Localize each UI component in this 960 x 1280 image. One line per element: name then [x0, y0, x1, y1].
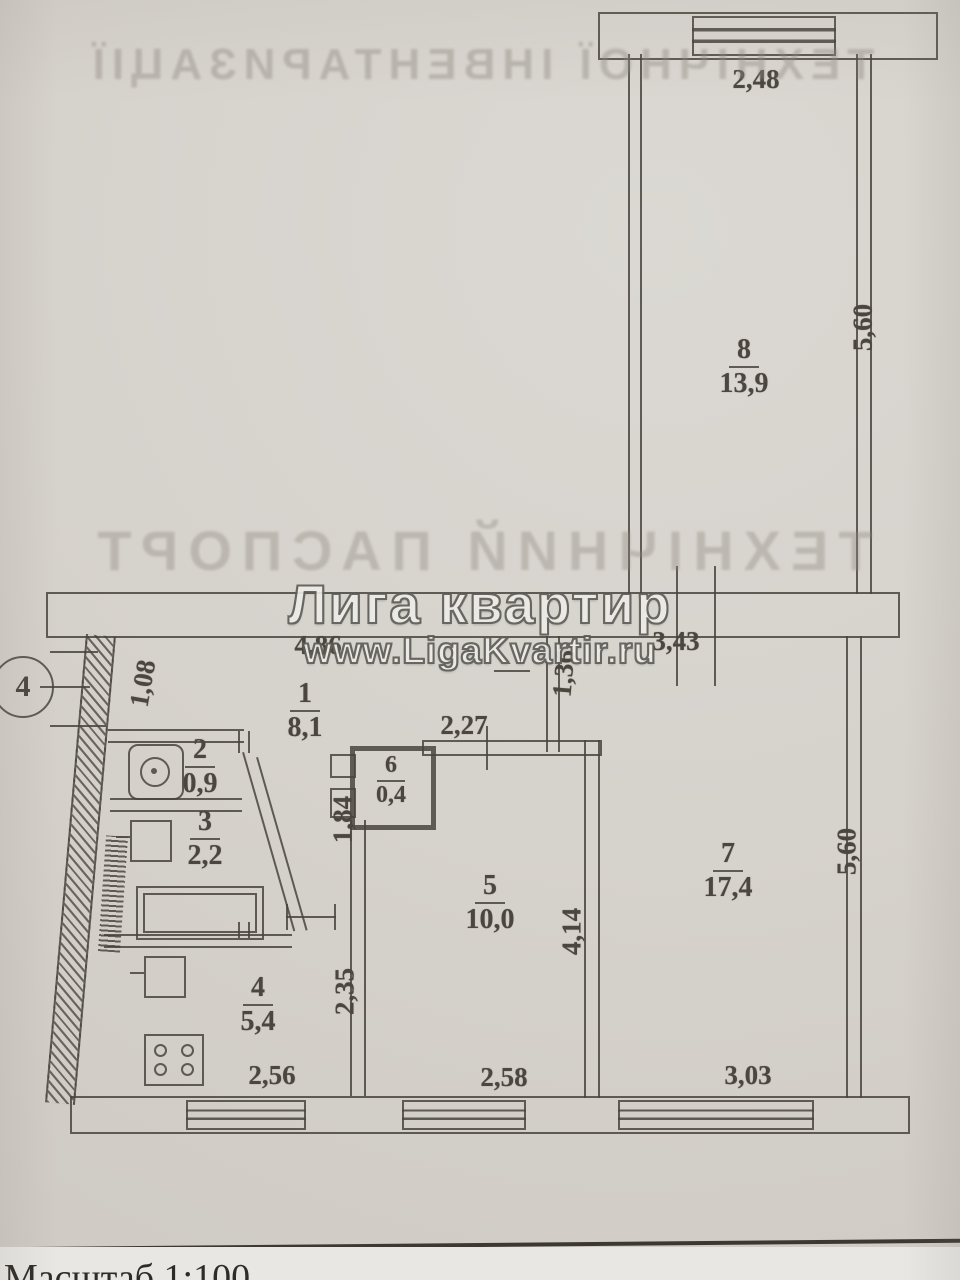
room6-wall-stub-upper	[330, 754, 356, 778]
bleed-text-top: ТЕХНІЧНОЇ ІНВЕНТАРИЗАЦІЇ	[0, 40, 960, 90]
room5-top-wall	[422, 740, 602, 756]
stove-burner-icon	[154, 1044, 167, 1057]
room7-label: 7 17,4	[692, 838, 764, 904]
kitchen-window	[186, 1100, 306, 1130]
washbasin-fixture	[130, 820, 172, 862]
dim-room6-left: 1,84	[328, 780, 359, 860]
watermark-title: Лига квартир	[180, 572, 780, 636]
dim-entry: 1,08	[121, 641, 165, 725]
kitchen-doorway-line	[286, 916, 336, 918]
room4-label: 4 5,4	[226, 972, 290, 1038]
scale-label: Масштаб 1:100	[4, 1256, 250, 1280]
dim-room5-window: 2,58	[454, 1062, 554, 1093]
photographed-floor-plan: ТЕХНІЧНОЇ ІНВЕНТАРИЗАЦІЇ ТЕХНІЧНИЙ ПАСПО…	[0, 0, 960, 1280]
dim-kitchen-right: 2,35	[330, 952, 361, 1032]
stove-burner-icon	[181, 1044, 194, 1057]
dim-room5-top: 2,27	[414, 710, 514, 741]
room5-label: 5 10,0	[452, 870, 528, 936]
stove-fixture	[144, 1034, 204, 1086]
entry-tick-top	[50, 651, 98, 653]
kitchen-doorway-jamb-right	[334, 904, 336, 930]
dim-room7-right: 5,60	[832, 809, 863, 895]
watermark-url: www.LigaKvartir.ru	[180, 630, 780, 672]
room8-label: 8 13,9	[710, 334, 778, 400]
entry-tick-bottom	[50, 725, 106, 727]
bathtub-fixture	[136, 886, 264, 940]
room2-label: 2 0,9	[168, 734, 232, 800]
stove-burner-icon	[154, 1063, 167, 1076]
room7-window	[618, 1100, 814, 1130]
axis-marker-number: 4	[16, 670, 31, 704]
dim-room5-right: 4,14	[557, 892, 588, 972]
toilet-bowl-icon	[140, 757, 170, 787]
washbasin-tap-icon	[116, 836, 130, 838]
kitchen-sink-tap-icon	[130, 972, 144, 974]
kitchen-sink-fixture	[144, 956, 186, 998]
dim-kitchen-window: 2,56	[222, 1060, 322, 1091]
axis-marker-circle: 4	[0, 656, 54, 718]
room3-label: 3 2,2	[173, 806, 237, 872]
room1-label: 1 8,1	[275, 678, 335, 744]
kitchen-doorway-jamb-left	[286, 904, 288, 930]
bathtub-inner-line	[143, 893, 257, 933]
dim-room8-right: 5,60	[848, 283, 879, 373]
dim-room7-window: 3,03	[698, 1060, 798, 1091]
room6-label: 6 0,4	[363, 752, 419, 809]
room8-left-wall	[628, 54, 642, 594]
stove-burner-icon	[181, 1063, 194, 1076]
room5-window	[402, 1100, 526, 1130]
